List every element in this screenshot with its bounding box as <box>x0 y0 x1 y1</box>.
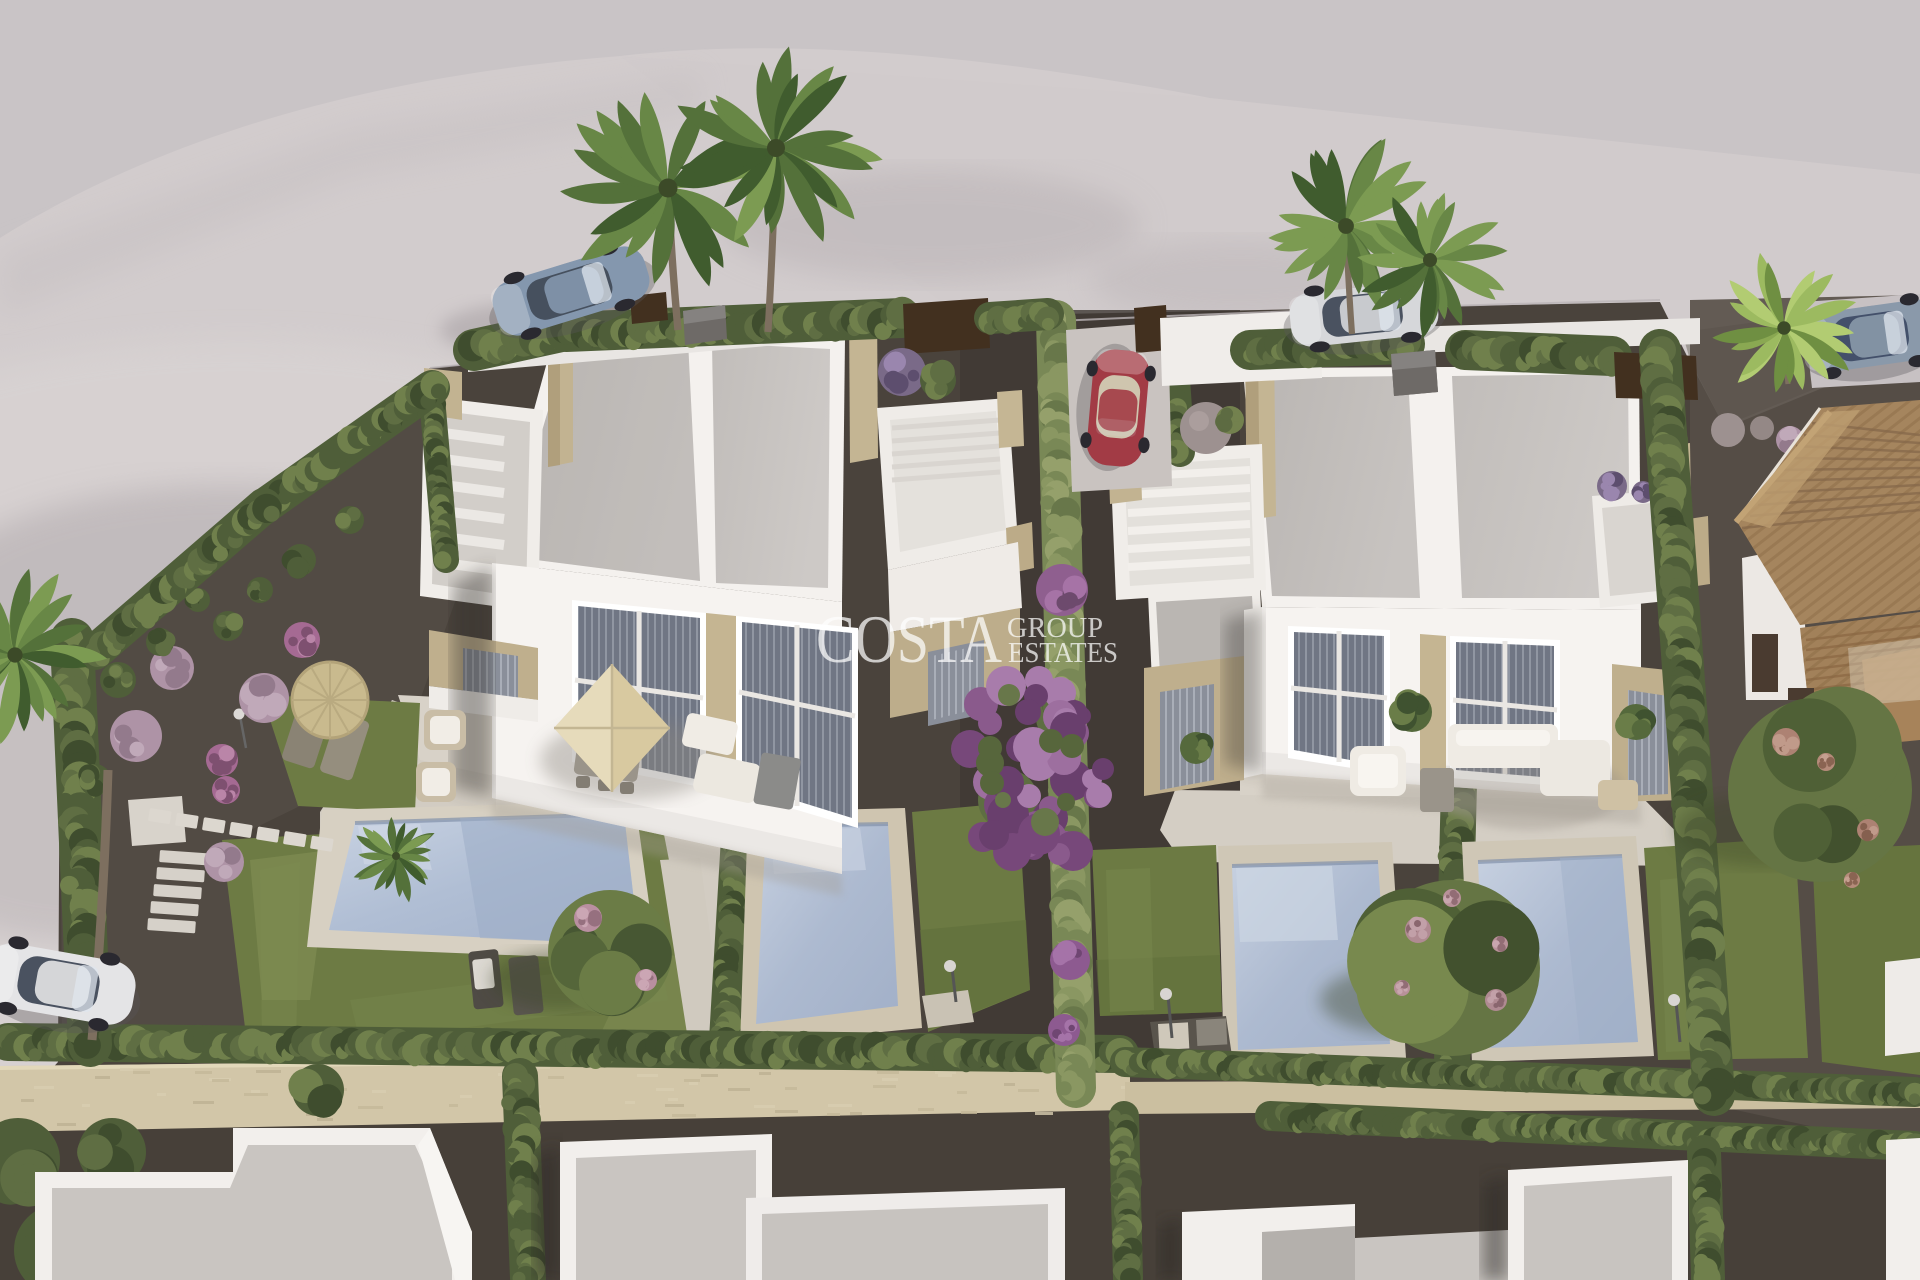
svg-text:ESTATES: ESTATES <box>1008 638 1118 669</box>
svg-text:COSTA: COSTA <box>816 601 1002 677</box>
